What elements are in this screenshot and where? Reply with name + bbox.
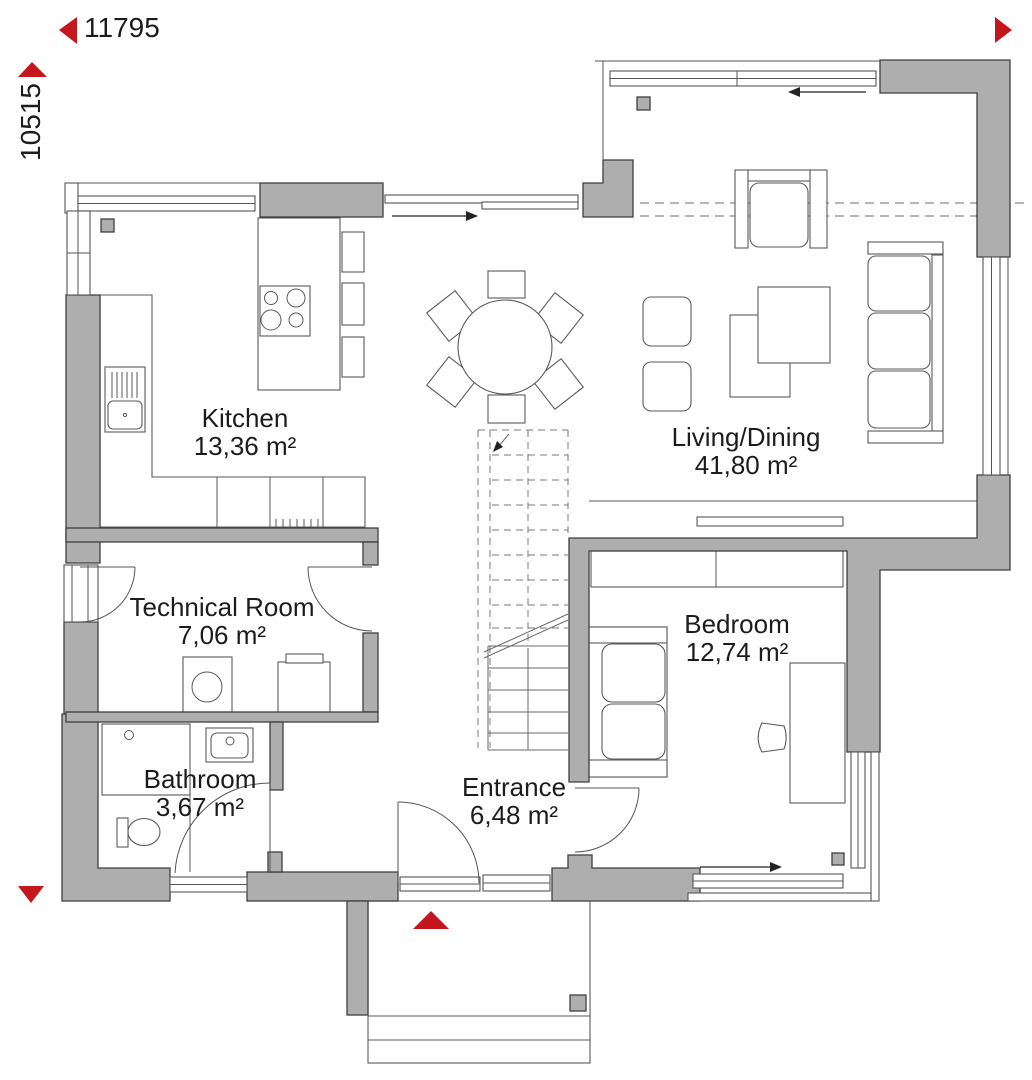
- floor-plan: 11795 10515 Kitchen 13,36 m² Living/Dini…: [0, 0, 1032, 1080]
- wall-porch-left: [347, 901, 368, 1015]
- room-area: 7,06 m²: [130, 621, 315, 649]
- room-name: Bathroom: [144, 765, 257, 793]
- toilet-tank: [117, 818, 128, 847]
- room-name: Entrance: [462, 773, 566, 801]
- room-label-living-dining: Living/Dining 41,80 m²: [672, 423, 821, 479]
- wall-top-right: [880, 60, 1010, 257]
- kitchen-fixtures: [100, 218, 365, 527]
- dimension-width-label: 11795: [84, 12, 160, 44]
- technical-room-fixtures: [183, 654, 330, 712]
- bedroom-furniture: [589, 551, 845, 803]
- wall-bath-entrance: [270, 722, 283, 790]
- width-arrow-right-icon: [995, 17, 1012, 43]
- wall-south-bath: [247, 872, 398, 901]
- wall-left-upper: [66, 295, 100, 563]
- room-label-bedroom: Bedroom 12,74 m²: [684, 610, 790, 666]
- bed: [589, 627, 667, 777]
- room-label-entrance: Entrance 6,48 m²: [462, 773, 566, 829]
- room-label-kitchen: Kitchen 13,36 m²: [194, 404, 297, 460]
- dining-chair: [488, 395, 525, 423]
- door-opening-tech-west: [64, 565, 98, 622]
- bar-stool: [342, 337, 364, 377]
- room-area: 3,67 m²: [144, 793, 257, 821]
- bar-stool: [342, 232, 364, 272]
- room-name: Kitchen: [194, 404, 297, 432]
- dining-table: [458, 300, 552, 394]
- arrow-left-icon: [788, 87, 800, 97]
- floor-plan-drawing: [0, 0, 1032, 1080]
- wall-tech-bath: [66, 712, 378, 722]
- washing-machine: [183, 657, 232, 712]
- room-name: Living/Dining: [672, 423, 821, 451]
- room-area: 13,36 m²: [194, 432, 297, 460]
- column: [570, 995, 586, 1011]
- column: [637, 97, 650, 110]
- door-bedroom: [575, 788, 639, 852]
- pouf: [643, 362, 691, 411]
- desk-chair: [758, 723, 786, 752]
- width-arrow-left-icon: [59, 17, 77, 44]
- sofa: [868, 242, 943, 443]
- entrance-porch: [368, 901, 590, 1063]
- wall-left-mid: [64, 622, 98, 714]
- desk: [790, 663, 845, 803]
- room-label-bathroom: Bathroom 3,67 m²: [144, 765, 257, 821]
- sideboard: [697, 517, 843, 526]
- arrow-right-icon: [770, 862, 782, 872]
- sink-basin: [108, 401, 142, 429]
- wall-kitchen-tech: [66, 528, 378, 542]
- staircase: [478, 430, 568, 750]
- height-arrow-up-icon: [18, 62, 47, 77]
- column: [832, 853, 844, 865]
- wall-tech-right-upper: [363, 542, 378, 565]
- column: [101, 219, 114, 232]
- room-name: Bedroom: [684, 610, 790, 638]
- room-area: 12,74 m²: [684, 638, 790, 666]
- overhang-dashed-lines: [640, 203, 1030, 216]
- armchair: [750, 183, 808, 247]
- room-name: Technical Room: [130, 593, 315, 621]
- room-area: 6,48 m²: [462, 801, 566, 829]
- height-arrow-down-icon: [18, 886, 44, 903]
- room-label-technical-room: Technical Room 7,06 m²: [130, 593, 315, 649]
- wall-tech-right-lower: [363, 633, 378, 712]
- pouf: [643, 297, 691, 346]
- boiler: [278, 662, 330, 712]
- wardrobe: [591, 551, 843, 587]
- bar-stool: [342, 283, 364, 325]
- room-area: 41,80 m²: [672, 451, 821, 479]
- door-technical-hall: [308, 567, 372, 631]
- wall-south-entrance: [552, 855, 700, 901]
- dining-set: [427, 271, 584, 423]
- dining-chair: [488, 271, 525, 298]
- wall-kitchen-north: [260, 183, 383, 217]
- dimension-height-label: 10515: [15, 83, 47, 161]
- coffee-table: [758, 287, 830, 363]
- living-furniture: [643, 170, 943, 443]
- toilet: [128, 819, 160, 846]
- arrow-right-icon: [466, 211, 478, 221]
- wall-center-top: [583, 160, 633, 217]
